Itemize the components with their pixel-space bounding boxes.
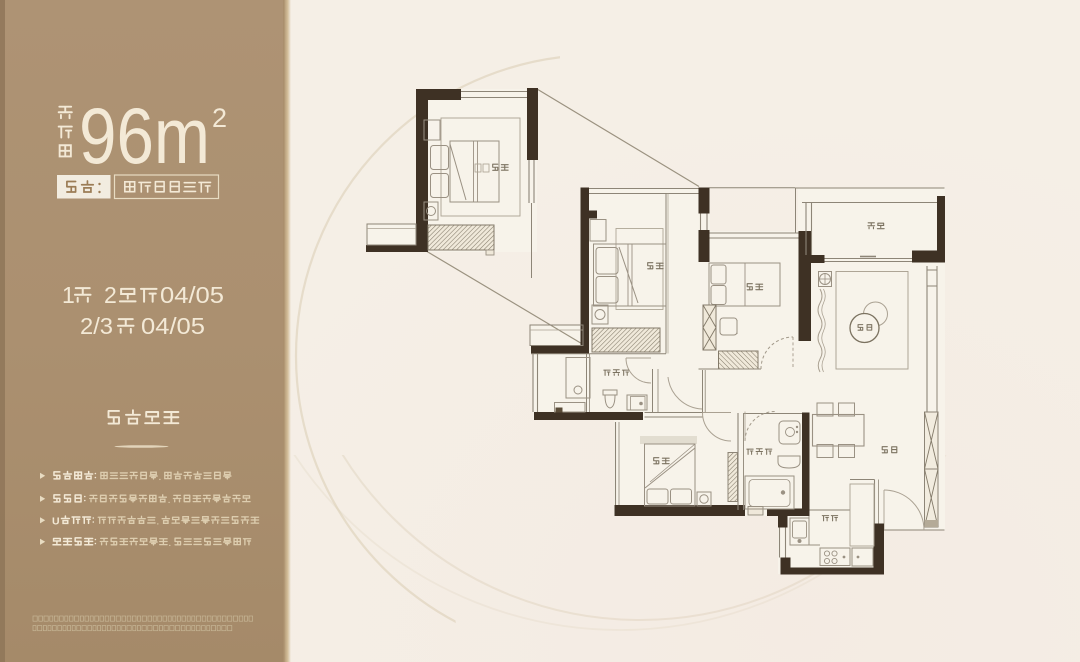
svg-text:2: 2 xyxy=(104,282,117,308)
svg-text:U: U xyxy=(52,516,60,528)
svg-text:04/05: 04/05 xyxy=(160,282,224,308)
svg-text:04/05: 04/05 xyxy=(141,313,205,339)
svg-text:96m: 96m xyxy=(79,91,210,180)
svg-text:2/3: 2/3 xyxy=(80,313,113,339)
svg-text:1: 1 xyxy=(62,282,75,308)
svg-text:2: 2 xyxy=(212,103,227,133)
